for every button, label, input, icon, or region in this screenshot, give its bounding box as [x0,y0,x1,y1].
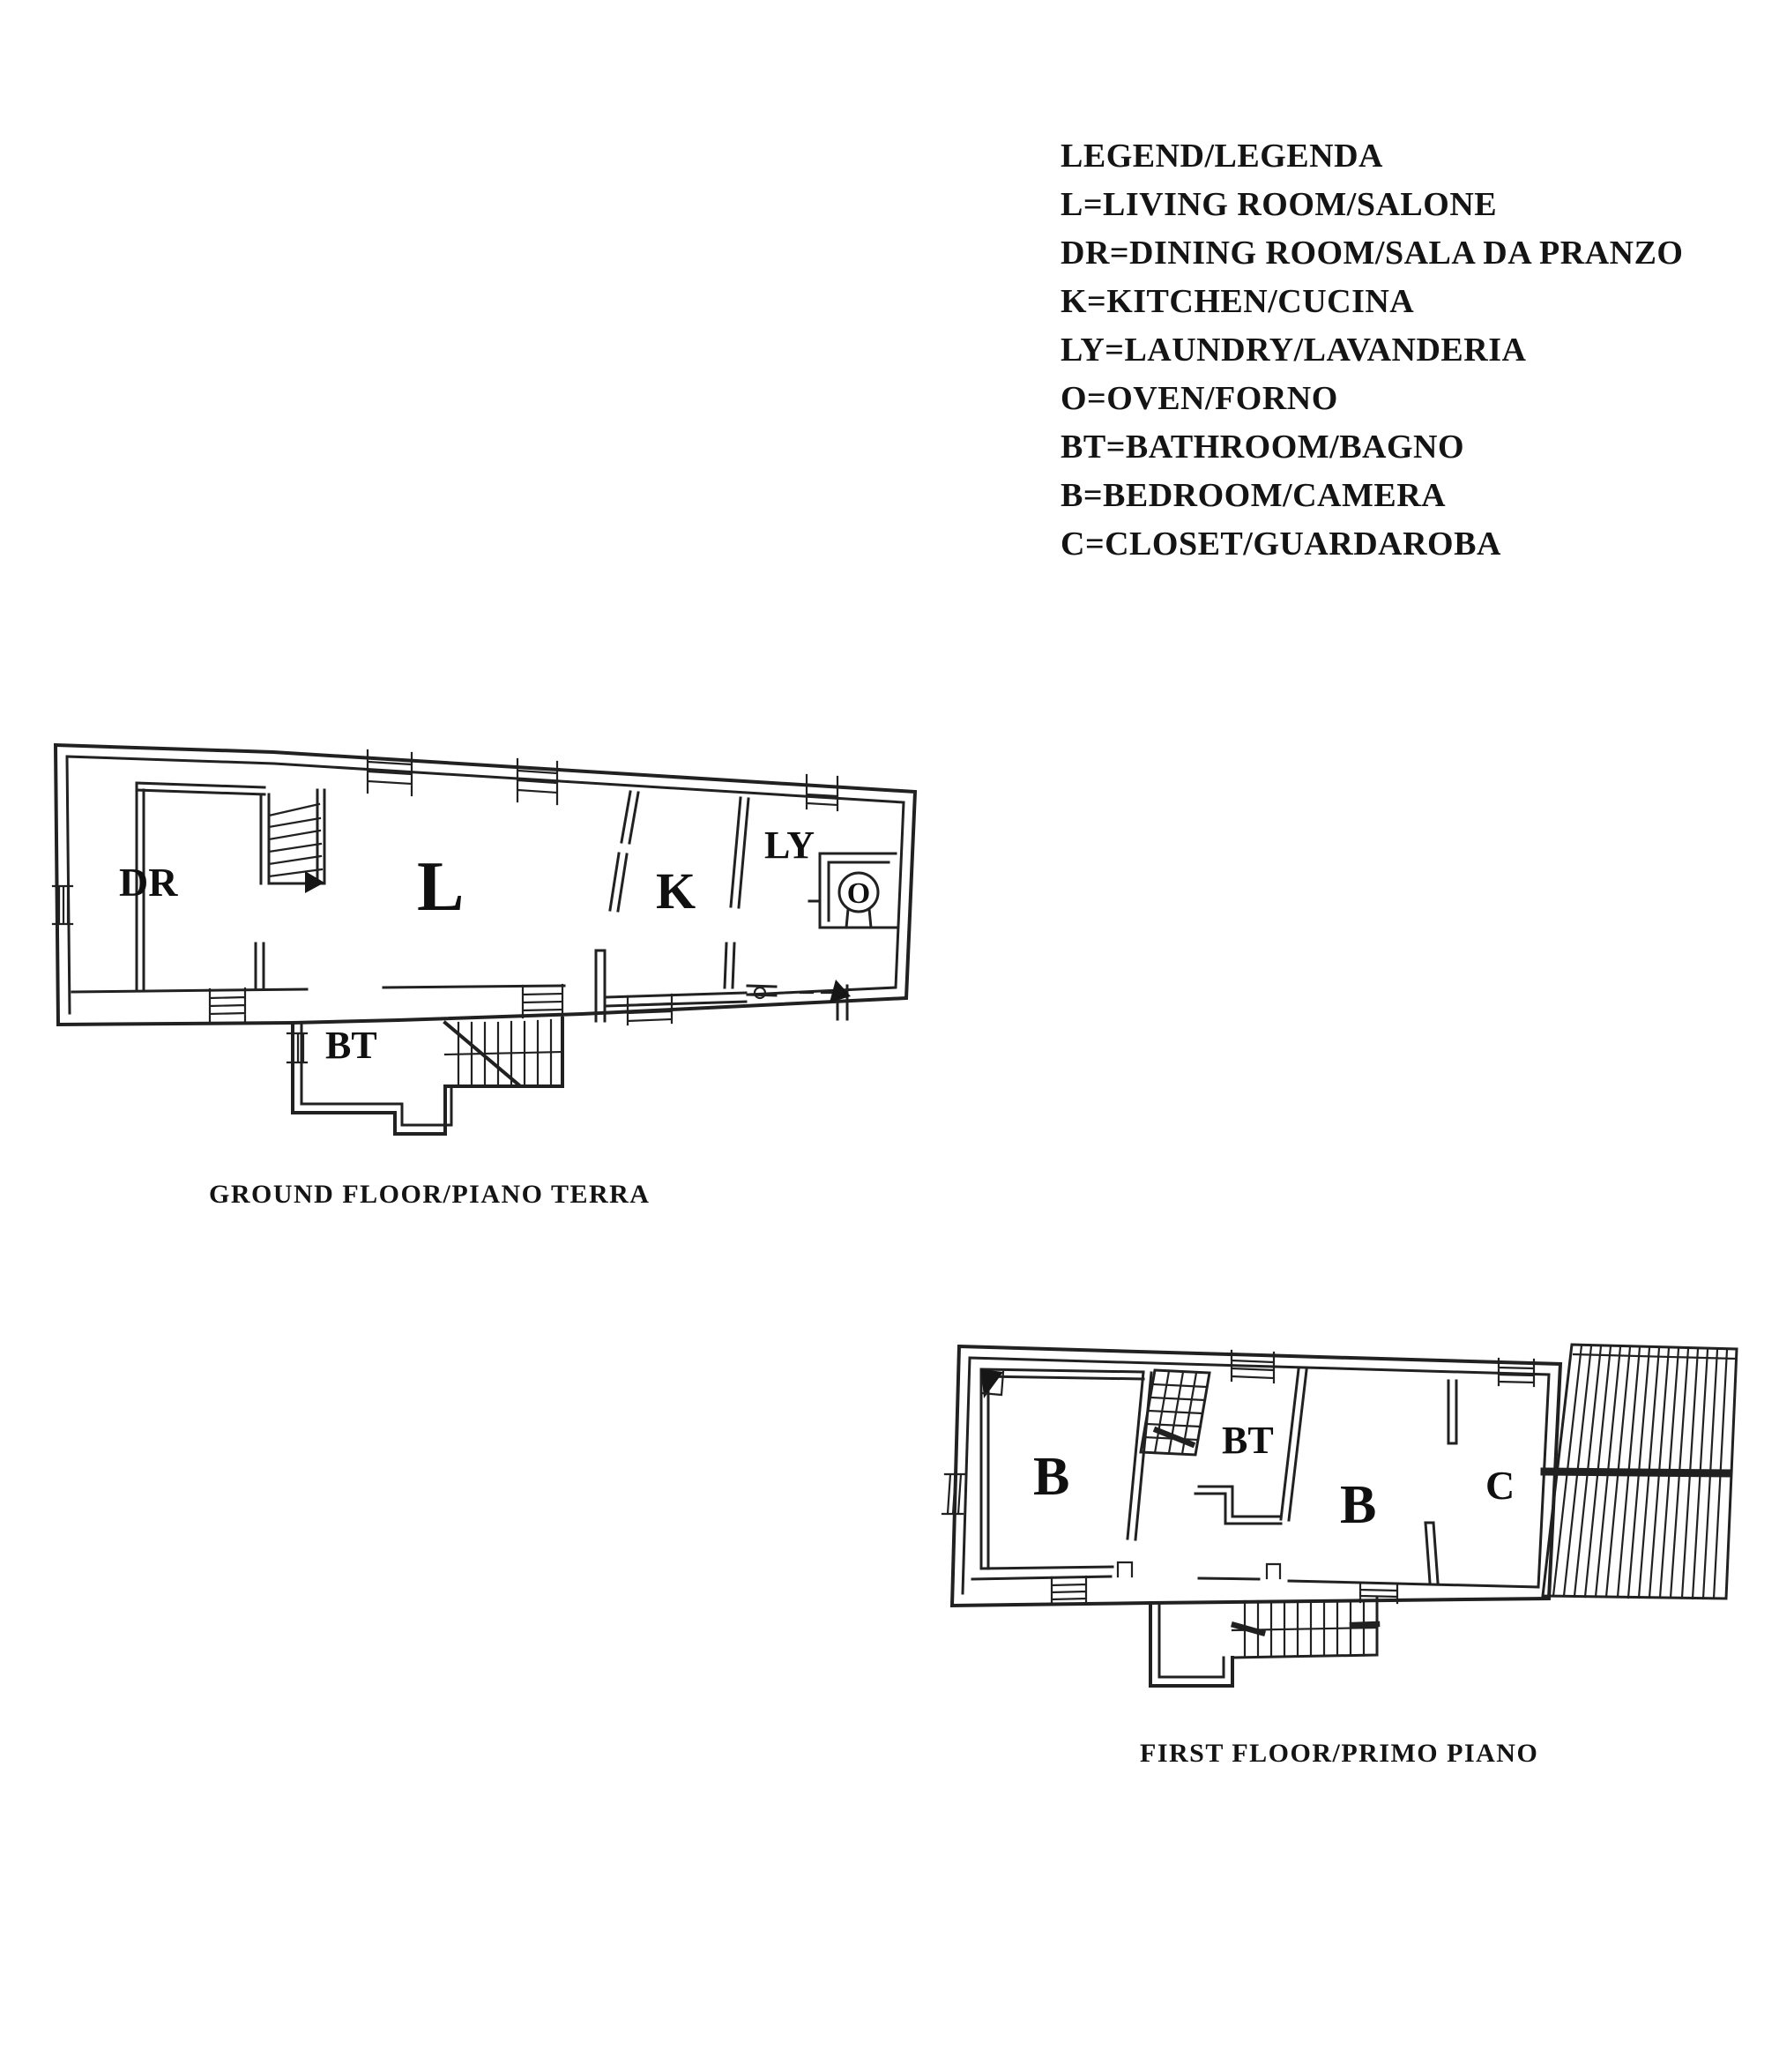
first-floor-caption: FIRST FLOOR/PRIMO PIANO [1140,1739,1538,1769]
legend-entry-kitchen: K=KITCHEN/CUCINA [1061,278,1683,326]
legend-entry-living: L=LIVING ROOM/SALONE [1061,181,1683,229]
legend: LEGEND/LEGENDA L=LIVING ROOM/SALONE DR=D… [1061,132,1683,569]
room-label-oven: O [847,877,870,910]
partition-living-kitchen [596,792,638,1021]
ground-outer-walls [56,745,915,1025]
legend-entry-oven: O=OVEN/FORNO [1061,375,1683,423]
roof-ridge-line [1545,1472,1728,1473]
room-label-kitchen: K [656,862,696,920]
ground-floor-caption: GROUND FLOOR/PIANO TERRA [209,1180,650,1210]
room-label-bedroom-right: B [1340,1475,1376,1535]
room-label-closet: C [1485,1463,1515,1508]
legend-entry-bathroom: BT=BATHROOM/BAGNO [1061,423,1683,472]
room-label-bedroom-left: B [1033,1447,1069,1507]
roof-terrace-hatch [1543,1345,1737,1599]
legend-entry-laundry: LY=LAUNDRY/LAVANDERIA [1061,326,1683,375]
room-label-bathroom-first: BT [1222,1419,1274,1462]
room-label-dining: DR [119,860,178,905]
legend-entry-dining: DR=DINING ROOM/SALA DA PRANZO [1061,229,1683,278]
exterior-stairs-ground [445,1020,562,1086]
partition-kitchen-laundry [725,798,748,988]
legend-entry-closet: C=CLOSET/GUARDAROBA [1061,520,1683,569]
legend-entry-bedroom: B=BEDROOM/CAMERA [1061,472,1683,520]
room-label-living: L [417,848,464,926]
first-floor-plan: B BT B C [899,1312,1746,1700]
legend-title: LEGEND/LEGENDA [1061,132,1683,181]
closet-partition-walls [1425,1381,1456,1583]
stair-direction-arrow-icon [305,871,324,893]
partition-dining-living [256,794,269,989]
room-label-laundry: LY [764,824,815,867]
landing-and-exterior-stairs-first [1150,1598,1377,1686]
scanned-floor-plan-page: LEGEND/LEGENDA L=LIVING ROOM/SALONE DR=D… [0,0,1779,2072]
ground-floor-plan: DR L K LY O BT [35,723,926,1252]
interior-staircase-ground [269,790,324,893]
room-label-bathroom-ground: BT [325,1024,377,1067]
